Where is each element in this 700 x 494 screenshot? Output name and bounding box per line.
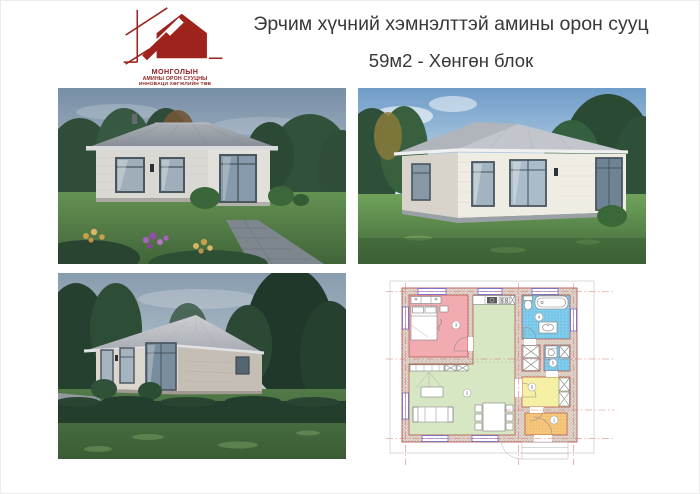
floor-plan-image: 3 2 4 5 6 1 [384, 275, 618, 475]
coffee-table [421, 387, 443, 397]
header: Эрчим хүчний хэмнэлттэй амины орон сууц … [246, 13, 656, 72]
kitchen-counter [473, 296, 515, 305]
room-label-bedroom: 3 [455, 323, 458, 328]
floor-plan-drawing: 3 2 4 5 6 1 [384, 275, 618, 475]
room-label-bathroom: 4 [538, 315, 541, 320]
exterior-side-render [58, 273, 346, 459]
page-subtitle: 59м2 - Хөнгөн блок [246, 50, 656, 72]
company-logo: МОНГОЛЫН АМИНЫ ОРОН СУУЦНЫ ИННОВАЦИ ХӨГЖ… [109, 6, 241, 87]
page: { "logo": { "line1": "МОНГОЛЫН", "line2"… [0, 0, 700, 494]
room-label-living: 2 [466, 391, 469, 396]
exterior-front-render-image [58, 88, 346, 264]
exterior-corner-render [358, 88, 646, 264]
bush [597, 205, 627, 227]
dining-table [483, 403, 505, 431]
exterior-corner-render-image [358, 88, 646, 264]
bed [411, 306, 437, 340]
room-label-utility: 5 [552, 361, 555, 366]
wall-lamp [554, 168, 558, 176]
room-label-hall: 6 [531, 385, 534, 390]
room-label-entry: 1 [553, 418, 556, 423]
window [412, 164, 430, 200]
entry-steps [501, 442, 568, 459]
logo-text-line1: МОНГОЛЫН [109, 67, 241, 76]
logo-text-line3: ИННОВАЦИ ХӨГЖЛИЙН ТӨВ [109, 82, 241, 87]
exterior-front-render [58, 88, 346, 264]
sofa [413, 407, 453, 422]
toilet [524, 300, 532, 310]
page-title: Эрчим хүчний хэмнэлттэй амины орон сууц [246, 13, 656, 36]
hall-closets [559, 378, 570, 406]
stove [499, 297, 510, 304]
toilet-tank [524, 296, 533, 301]
logo-house-icon [121, 6, 229, 66]
nightstand [440, 306, 448, 312]
exterior-side-render-image [58, 273, 346, 459]
